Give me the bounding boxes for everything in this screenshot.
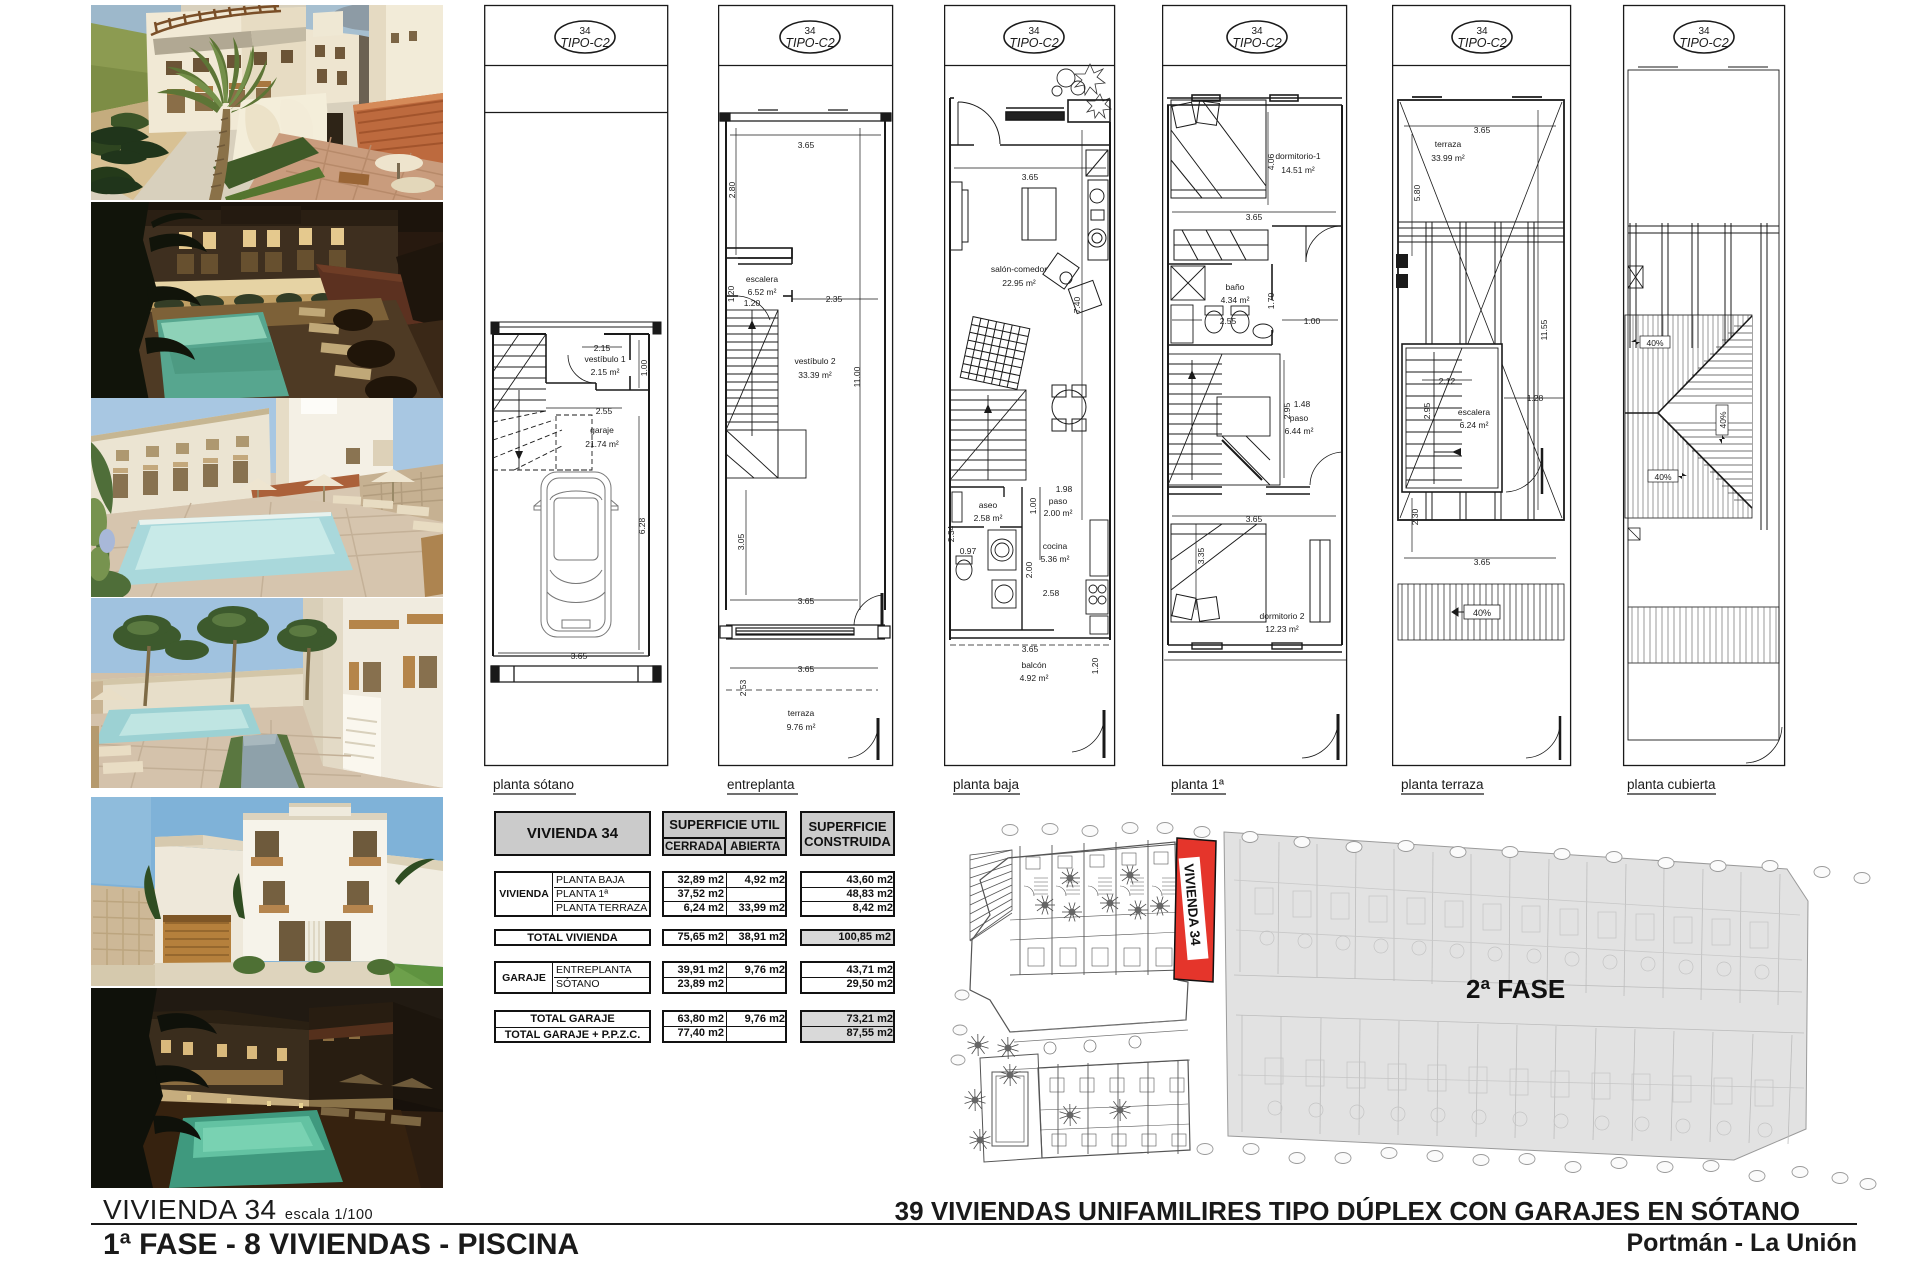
- svg-text:40%: 40%: [1654, 472, 1671, 482]
- svg-text:1.20: 1.20: [1090, 657, 1100, 674]
- svg-text:2.34: 2.34: [946, 525, 956, 542]
- svg-text:2.58 m²: 2.58 m²: [974, 513, 1003, 523]
- svg-text:1.00: 1.00: [1028, 497, 1038, 514]
- svg-text:1.98: 1.98: [1056, 484, 1073, 494]
- svg-text:planta baja: planta baja: [953, 777, 1020, 792]
- svg-text:3.65: 3.65: [798, 140, 815, 150]
- svg-text:2.15: 2.15: [594, 343, 611, 353]
- svg-text:aseo: aseo: [979, 500, 998, 510]
- svg-text:vestíbulo 1: vestíbulo 1: [584, 354, 625, 364]
- svg-text:11.00: 11.00: [852, 366, 862, 387]
- svg-text:2.80: 2.80: [727, 181, 737, 198]
- svg-text:6.52 m²: 6.52 m²: [748, 287, 777, 297]
- svg-text:14.51 m²: 14.51 m²: [1281, 165, 1315, 175]
- svg-text:3.65: 3.65: [1474, 125, 1491, 135]
- svg-text:40%: 40%: [1473, 608, 1491, 618]
- svg-text:TIPO-C2: TIPO-C2: [1679, 36, 1728, 50]
- svg-text:2.55: 2.55: [596, 406, 613, 416]
- svg-text:planta 1ª: planta 1ª: [1171, 777, 1225, 792]
- svg-text:4.34 m²: 4.34 m²: [1221, 295, 1250, 305]
- svg-text:6.44 m²: 6.44 m²: [1285, 426, 1314, 436]
- svg-text:33.39 m²: 33.39 m²: [798, 370, 832, 380]
- svg-text:paso: paso: [1049, 496, 1068, 506]
- svg-text:22.95 m²: 22.95 m²: [1002, 278, 1036, 288]
- svg-text:2.30: 2.30: [1410, 508, 1420, 525]
- svg-text:1.20: 1.20: [744, 298, 761, 308]
- svg-text:terraza: terraza: [788, 708, 815, 718]
- svg-text:2.00: 2.00: [1024, 561, 1034, 578]
- svg-text:40%: 40%: [1718, 411, 1728, 428]
- svg-text:vestíbulo 2: vestíbulo 2: [794, 356, 835, 366]
- svg-text:3.35: 3.35: [1196, 547, 1206, 564]
- svg-text:escalera: escalera: [746, 274, 778, 284]
- svg-text:planta cubierta: planta cubierta: [1627, 777, 1716, 792]
- svg-text:dormitorio 2: dormitorio 2: [1260, 611, 1305, 621]
- svg-text:2.55: 2.55: [1220, 316, 1237, 326]
- svg-text:3.65: 3.65: [1022, 644, 1039, 654]
- svg-text:4.92 m²: 4.92 m²: [1020, 673, 1049, 683]
- svg-text:garaje: garaje: [590, 425, 614, 435]
- svg-text:11.55: 11.55: [1539, 319, 1549, 340]
- svg-text:1.00: 1.00: [639, 359, 649, 376]
- svg-text:3.65: 3.65: [1022, 172, 1039, 182]
- svg-text:1.70: 1.70: [1266, 292, 1276, 309]
- svg-text:6.24 m²: 6.24 m²: [1460, 420, 1489, 430]
- svg-text:planta terraza: planta terraza: [1401, 777, 1484, 792]
- svg-text:TIPO-C2: TIPO-C2: [1457, 36, 1506, 50]
- svg-text:balcón: balcón: [1021, 660, 1046, 670]
- svg-text:3.65: 3.65: [798, 596, 815, 606]
- svg-text:3.65: 3.65: [1474, 557, 1491, 567]
- svg-text:1.48: 1.48: [1294, 399, 1311, 409]
- svg-text:1.20: 1.20: [726, 285, 736, 302]
- svg-text:2.53: 2.53: [738, 679, 748, 696]
- svg-text:baño: baño: [1226, 282, 1245, 292]
- svg-text:33.99 m²: 33.99 m²: [1431, 153, 1465, 163]
- svg-text:TIPO-C2: TIPO-C2: [560, 36, 609, 50]
- svg-text:6.28: 6.28: [637, 517, 647, 534]
- svg-text:9.76 m²: 9.76 m²: [787, 722, 816, 732]
- svg-text:2.12: 2.12: [1439, 376, 1456, 386]
- svg-text:2.58: 2.58: [1043, 588, 1060, 598]
- svg-text:21.74 m²: 21.74 m²: [585, 439, 619, 449]
- svg-text:3.05: 3.05: [736, 533, 746, 550]
- svg-text:3.65: 3.65: [798, 664, 815, 674]
- svg-text:5.36 m²: 5.36 m²: [1041, 554, 1070, 564]
- svg-text:TIPO-C2: TIPO-C2: [1009, 36, 1058, 50]
- svg-text:entreplanta: entreplanta: [727, 777, 795, 792]
- svg-text:5.80: 5.80: [1412, 184, 1422, 201]
- svg-text:2ª FASE: 2ª FASE: [1466, 974, 1565, 1004]
- svg-text:TIPO-C2: TIPO-C2: [785, 36, 834, 50]
- svg-text:2.95: 2.95: [1282, 402, 1292, 419]
- svg-text:dormitorio-1: dormitorio-1: [1275, 151, 1321, 161]
- svg-text:escalera: escalera: [1458, 407, 1490, 417]
- svg-text:2.95: 2.95: [1422, 402, 1432, 419]
- svg-text:3.65: 3.65: [1246, 514, 1263, 524]
- svg-text:paso: paso: [1290, 413, 1309, 423]
- svg-text:cocina: cocina: [1043, 541, 1068, 551]
- svg-text:planta sótano: planta sótano: [493, 777, 574, 792]
- svg-text:terraza: terraza: [1435, 139, 1462, 149]
- svg-text:2.15 m²: 2.15 m²: [591, 367, 620, 377]
- svg-text:TIPO-C2: TIPO-C2: [1232, 36, 1281, 50]
- svg-text:3.65: 3.65: [1246, 212, 1263, 222]
- svg-text:salón-comedor: salón-comedor: [991, 264, 1047, 274]
- svg-text:0.97: 0.97: [960, 546, 977, 556]
- svg-text:40%: 40%: [1646, 338, 1663, 348]
- svg-text:2.00 m²: 2.00 m²: [1044, 508, 1073, 518]
- svg-text:4.06: 4.06: [1266, 153, 1276, 170]
- svg-text:12.23 m²: 12.23 m²: [1265, 624, 1299, 634]
- svg-text:1.00: 1.00: [1304, 316, 1321, 326]
